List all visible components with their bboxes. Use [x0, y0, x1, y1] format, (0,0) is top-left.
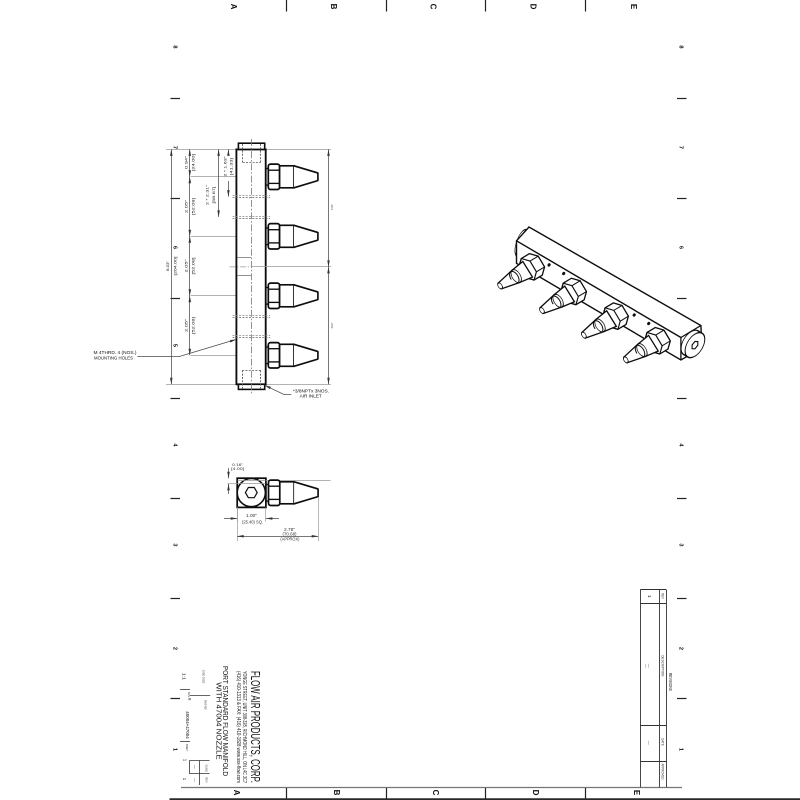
svg-text:5: 5	[172, 344, 178, 347]
svg-text:2: 2	[677, 647, 683, 650]
svg-text:2: 2	[172, 647, 178, 650]
svg-text:C: C	[428, 4, 437, 10]
svg-text:3: 3	[172, 543, 178, 546]
svg-text:2.05": 2.05"	[184, 259, 189, 273]
svg-text:REVISIONS: REVISIONS	[668, 673, 673, 691]
svg-text:SHEET: SHEET	[185, 744, 189, 752]
svg-text:2.05": 2.05"	[184, 199, 189, 213]
svg-text:A: A	[229, 4, 238, 10]
svg-text:B: B	[329, 4, 338, 10]
svg-text:REV: REV	[204, 777, 208, 783]
svg-text:1: 1	[677, 748, 683, 751]
svg-text:M 4THRD. 4 (NOS.): M 4THRD. 4 (NOS.)	[94, 350, 137, 355]
svg-text:1.00": 1.00"	[246, 513, 257, 518]
svg-text:E: E	[632, 790, 641, 796]
svg-text:SIZE: SIZE	[187, 692, 191, 698]
svg-text:DATE: DATE	[660, 738, 664, 746]
svg-text:D: D	[531, 790, 540, 796]
svg-text:[58.67]: [58.67]	[211, 187, 216, 204]
svg-text:1:1: 1:1	[182, 673, 187, 681]
svg-text:6: 6	[677, 246, 683, 249]
svg-text:4.02": 4.02"	[330, 204, 334, 210]
svg-text:[204.00]: [204.00]	[173, 257, 178, 276]
svg-text:E: E	[629, 4, 638, 10]
svg-text:—: —	[647, 741, 652, 745]
svg-text:8.03": 8.03"	[165, 260, 170, 271]
svg-text:[52.08]: [52.08]	[191, 258, 196, 275]
svg-text:A: A	[232, 790, 241, 796]
svg-text:—: —	[193, 765, 198, 769]
svg-text:(APPROX): (APPROX)	[280, 537, 299, 542]
svg-text:3: 3	[677, 543, 683, 546]
svg-text:[52.08]: [52.08]	[191, 198, 196, 215]
svg-text:[52.08]: [52.08]	[191, 317, 196, 334]
svg-text:4.02": 4.02"	[330, 323, 334, 329]
svg-text:SCALE: SCALE	[204, 764, 208, 772]
svg-text:40004+47004: 40004+47004	[185, 711, 190, 739]
svg-text:MOUNTING HOLES: MOUNTING HOLES	[94, 355, 133, 360]
svg-text:YONGE STREET, UNIT 308-328, RI: YONGE STREET, UNIT 308-328, RICHMOND HIL…	[241, 671, 247, 783]
svg-text:REV: REV	[660, 593, 664, 600]
svg-text:6: 6	[172, 246, 178, 249]
svg-text:(416) 410-1313 & FAX: (416) 41: (416) 410-1313 & FAX: (416) 410-1828 www…	[235, 671, 241, 783]
svg-text:7: 7	[677, 146, 683, 149]
svg-text:[41.33]: [41.33]	[229, 158, 234, 175]
svg-text:B: B	[332, 790, 341, 796]
svg-text:[4.00]: [4.00]	[231, 467, 244, 471]
svg-text:DESCRIPTION: DESCRIPTION	[660, 655, 664, 676]
svg-text:—: —	[647, 664, 652, 668]
svg-text:0.94": 0.94"	[184, 155, 189, 169]
svg-text:WITH 47004 NOZZLE: WITH 47004 NOZZLE	[215, 682, 224, 760]
svg-text:APPROVED: APPROVED	[660, 764, 664, 780]
svg-text:AIR INLET: AIR INLET	[300, 394, 322, 399]
svg-text:CAGE CODE: CAGE CODE	[202, 670, 206, 684]
svg-text:—: —	[193, 778, 198, 782]
svg-text:D: D	[528, 4, 537, 10]
svg-text:(25.40) SQ.: (25.40) SQ.	[242, 519, 263, 524]
svg-text:DWG NO: DWG NO	[204, 700, 208, 710]
svg-text:[24.00]: [24.00]	[191, 154, 196, 171]
svg-text:1: 1	[172, 748, 178, 751]
svg-text:8: 8	[677, 45, 683, 48]
svg-text:1: 1	[647, 595, 652, 598]
svg-text:8: 8	[172, 45, 178, 48]
svg-text:2 * 2.31": 2 * 2.31"	[205, 184, 210, 205]
svg-text:2 * 1.63": 2 * 1.63"	[222, 156, 227, 177]
svg-text:7: 7	[172, 146, 178, 149]
svg-text:FLOW AIR PRODUCTS, CORP.: FLOW AIR PRODUCTS, CORP.	[248, 671, 263, 783]
svg-text:2.05": 2.05"	[184, 318, 189, 332]
svg-text:C: C	[431, 790, 440, 796]
